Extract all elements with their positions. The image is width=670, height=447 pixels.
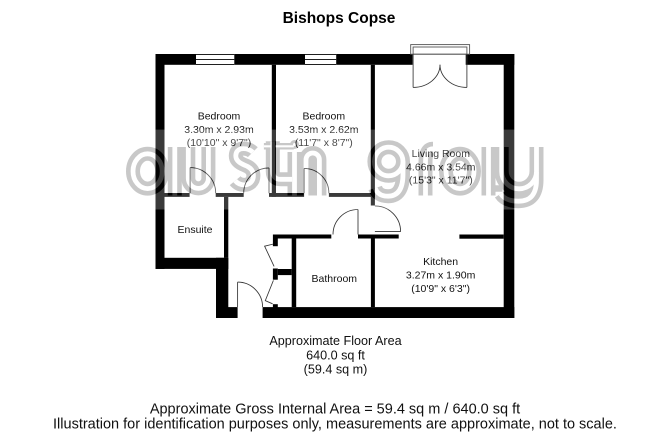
svg-text:640.0 sq ft: 640.0 sq ft <box>306 348 365 362</box>
svg-text:3.27m x 1.90m: 3.27m x 1.90m <box>406 270 476 282</box>
svg-text:Approximate Floor Area: Approximate Floor Area <box>269 334 401 348</box>
svg-text:Kitchen: Kitchen <box>423 256 458 268</box>
svg-text:Bedroom: Bedroom <box>198 110 241 122</box>
svg-text:(10'9" x 6'3"): (10'9" x 6'3") <box>411 283 470 295</box>
svg-text:Illustration for identificatio: Illustration for identification purposes… <box>53 417 617 433</box>
svg-text:Bathroom: Bathroom <box>312 273 358 285</box>
svg-text:(59.4 sq m): (59.4 sq m) <box>304 363 368 377</box>
svg-text:Bedroom: Bedroom <box>302 110 345 122</box>
svg-text:Bishops Copse: Bishops Copse <box>283 10 396 27</box>
svg-text:Ensuite: Ensuite <box>177 224 212 236</box>
svg-text:Approximate Gross Internal Are: Approximate Gross Internal Area = 59.4 s… <box>150 401 520 417</box>
